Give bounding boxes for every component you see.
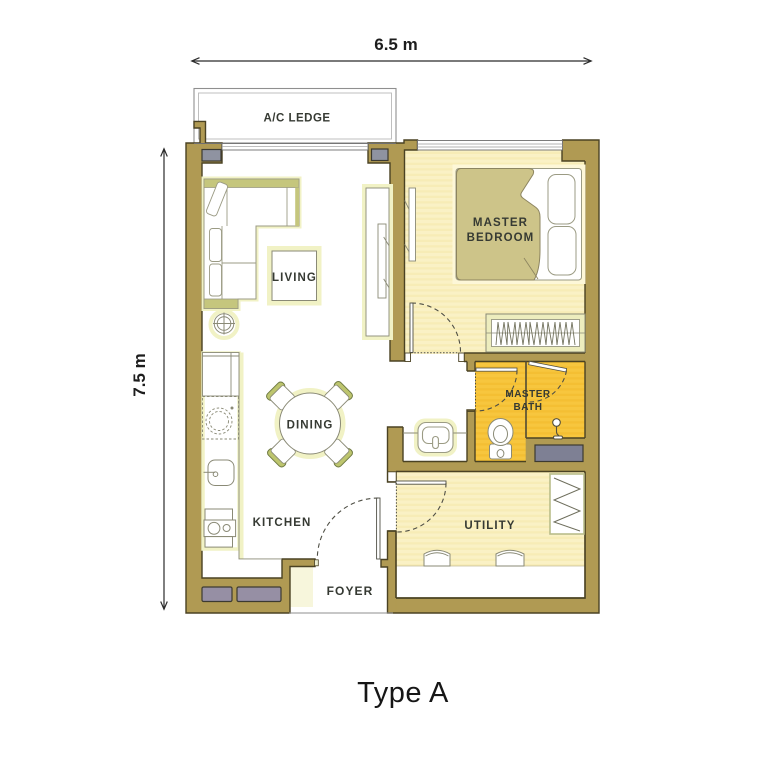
svg-text:UTILITY: UTILITY (464, 520, 515, 532)
svg-text:7.5 m: 7.5 m (130, 353, 149, 396)
svg-text:FOYER: FOYER (327, 584, 374, 598)
svg-text:KITCHEN: KITCHEN (253, 517, 312, 529)
svg-text:LIVING: LIVING (272, 272, 317, 284)
svg-text:A/C LEDGE: A/C LEDGE (263, 113, 330, 125)
svg-text:MASTER: MASTER (473, 217, 528, 229)
svg-text:6.5 m: 6.5 m (374, 35, 417, 54)
svg-text:DINING: DINING (287, 420, 334, 432)
svg-text:Type A: Type A (357, 677, 449, 709)
svg-text:MASTER: MASTER (505, 389, 551, 400)
svg-text:BATH: BATH (513, 402, 542, 413)
svg-text:BEDROOM: BEDROOM (467, 232, 535, 244)
